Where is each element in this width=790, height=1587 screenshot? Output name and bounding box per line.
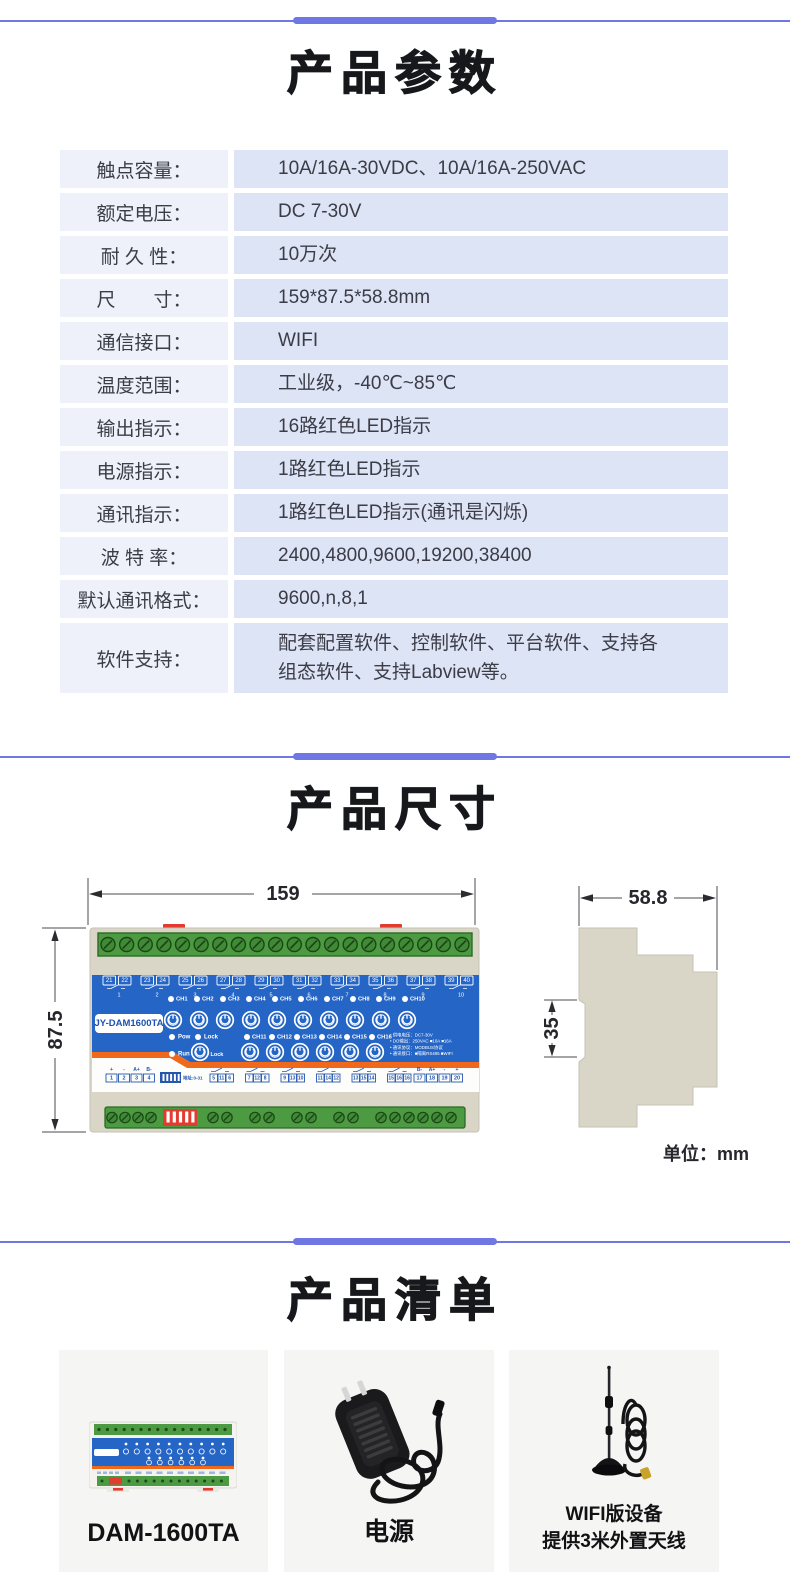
screw — [107, 1112, 117, 1122]
dip-switch — [173, 1112, 176, 1123]
terminal-block-top — [98, 933, 472, 956]
io-terminal-number: 11 — [318, 1075, 324, 1081]
terminal-number: 23 — [144, 978, 151, 984]
screw — [269, 938, 283, 952]
screw — [287, 938, 301, 952]
screw — [404, 1112, 414, 1122]
terminal-number: 29 — [258, 978, 265, 984]
spec-value: WIFI — [234, 322, 728, 360]
module-photo — [89, 1414, 237, 1496]
section-divider — [0, 753, 790, 760]
spec-label: 尺 寸： — [60, 279, 228, 317]
screw — [157, 938, 171, 952]
wifi-antenna-photo — [539, 1364, 689, 1506]
io-terminal-number: 9 — [283, 1075, 286, 1081]
dip-switch — [167, 1112, 170, 1123]
screw — [325, 938, 339, 952]
io-terminal-number: 20 — [454, 1075, 460, 1081]
dip-switch — [179, 1112, 182, 1123]
screw — [250, 1112, 260, 1122]
spec-value: DC 7-30V — [234, 193, 728, 231]
lock-button-label: Lock — [211, 1052, 225, 1058]
ch-label: CH11 — [252, 1035, 267, 1041]
io-terminal-number: 15 — [388, 1075, 394, 1081]
section-title-checklist: 产品清单 — [0, 1277, 790, 1323]
spec-value: 9600,n,8,1 — [234, 580, 728, 618]
screw — [418, 938, 432, 952]
ch-label: CH14 — [327, 1035, 343, 1041]
ch-led — [350, 996, 356, 1002]
ch-label: CH5 — [280, 997, 292, 1003]
terminal-number: 36 — [387, 978, 394, 984]
dip-switch — [191, 1112, 194, 1123]
ch-label: CH8 — [358, 997, 370, 1003]
io-terminal-number: 3 — [135, 1075, 138, 1081]
screw — [348, 1112, 358, 1122]
product-label: DAM-1600TA — [59, 1519, 268, 1548]
ch-label: CH12 — [277, 1035, 292, 1041]
spec-value: 10A/16A-30VDC、10A/16A-250VAC — [234, 150, 728, 188]
screw — [455, 938, 469, 952]
section-divider — [0, 1238, 790, 1245]
io-terminal-number: 11 — [219, 1075, 225, 1081]
spec-value: 16路红色LED指示 — [234, 408, 728, 446]
ch-led — [272, 996, 278, 1002]
io-terminal-number: 14 — [325, 1075, 331, 1081]
panel-info-line: • 通讯协议：MODBUS协议 — [390, 1044, 443, 1051]
screw — [399, 938, 413, 952]
spec-label: 通讯指示： — [60, 494, 228, 532]
terminal-number: 32 — [311, 978, 318, 984]
ch-led — [246, 996, 252, 1002]
spec-label: 输出指示： — [60, 408, 228, 446]
ch-label: CH1 — [176, 997, 188, 1003]
io-terminal-number: 19 — [441, 1075, 447, 1081]
screw — [120, 938, 134, 952]
dim-width-label: 159 — [266, 883, 299, 905]
io-label: + — [110, 1067, 113, 1073]
screw — [306, 1112, 316, 1122]
io-terminal-number: 10 — [298, 1075, 304, 1081]
ch-led — [244, 1034, 250, 1040]
spec-label: 电源指示： — [60, 451, 228, 489]
relay-group-number: 5 — [269, 993, 272, 999]
screw — [138, 938, 152, 952]
ch-led — [319, 1034, 325, 1040]
section-divider — [0, 17, 790, 24]
product-label: WIFI版设备 提供3米外置天线 — [509, 1501, 719, 1556]
spec-value: 1路红色LED指示(通讯是闪烁) — [234, 494, 728, 532]
dim-rail-label: 35 — [541, 1017, 563, 1039]
panel-info-line: • 供电电压：DC7-30V — [390, 1032, 433, 1039]
io-terminal-number: 14 — [369, 1075, 375, 1081]
terminal-number: 40 — [463, 978, 470, 984]
terminal-number: 27 — [220, 978, 227, 984]
spec-label: 耐 久 性： — [60, 236, 228, 274]
screw — [380, 938, 394, 952]
screw — [208, 1112, 218, 1122]
ch-led — [324, 996, 330, 1002]
screw — [194, 938, 208, 952]
ch-led — [294, 1034, 300, 1040]
spec-value: 配套配置软件、控制软件、平台软件、支持各 组态软件、支持Labview等。 — [234, 623, 728, 693]
screw — [146, 1112, 156, 1122]
screw — [250, 938, 264, 952]
ch-led — [220, 996, 226, 1002]
spec-value: 10万次 — [234, 236, 728, 274]
relay-group-number: 7 — [345, 993, 348, 999]
lock-led — [195, 1034, 201, 1040]
screw — [213, 938, 227, 952]
dip-switch — [185, 1112, 188, 1123]
divider-accent-bar — [293, 1238, 497, 1245]
spec-label: 软件支持： — [60, 623, 228, 693]
ch-led — [369, 1034, 375, 1040]
screw — [101, 938, 115, 952]
terminal-number: 35 — [372, 978, 379, 984]
terminal-number: 26 — [197, 978, 204, 984]
spec-label: 额定电压： — [60, 193, 228, 231]
spec-value: 2400,4800,9600,19200,38400 — [234, 537, 728, 575]
relay-group-number: 1 — [117, 993, 120, 999]
unit-note: 单位：mm — [663, 1143, 749, 1164]
dim-height-label: 87.5 — [45, 1011, 67, 1050]
screw — [376, 1112, 386, 1122]
side-view-drawing: 58.8 35 — [541, 886, 717, 1127]
terminal-number: 33 — [334, 978, 341, 984]
ch-led — [402, 996, 408, 1002]
screw — [334, 1112, 344, 1122]
screw — [432, 1112, 442, 1122]
screw — [343, 938, 357, 952]
screw — [306, 938, 320, 952]
io-terminal-number: 16 — [404, 1075, 410, 1081]
dim-depth-label: 58.8 — [629, 887, 668, 909]
screw — [446, 1112, 456, 1122]
io-terminal-number: 12 — [254, 1075, 260, 1081]
section-title-params: 产品参数 — [0, 50, 790, 96]
io-label: A+ — [133, 1067, 140, 1073]
divider-accent-bar — [293, 17, 497, 24]
pow-led — [169, 1034, 175, 1040]
ch-label: CH9 — [384, 997, 396, 1003]
model-badge-label: JY-DAM1600TA — [95, 1018, 164, 1029]
io-terminal-number: 13 — [353, 1075, 359, 1081]
ch-led — [298, 996, 304, 1002]
spec-table: 触点容量：10A/16A-30VDC、10A/16A-250VAC额定电压：DC… — [60, 150, 728, 693]
terminal-number: 21 — [106, 978, 113, 984]
io-terminal-number: 2 — [122, 1075, 125, 1081]
terminal-number: 31 — [296, 978, 303, 984]
lock-label: Lock — [204, 1035, 219, 1041]
screw — [222, 1112, 232, 1122]
screw — [292, 1112, 302, 1122]
terminal-number: 39 — [448, 978, 455, 984]
screw — [436, 938, 450, 952]
dip-address-label: 地址:0-31 — [183, 1075, 203, 1082]
front-view-drawing: 159 87.5 2122232425262728293031323334353… — [42, 878, 479, 1132]
io-label: B- — [146, 1067, 152, 1073]
screw — [231, 938, 245, 952]
io-label: + — [456, 1067, 459, 1073]
spec-value: 工业级，-40℃~85℃ — [234, 365, 728, 403]
power-adapter-photo — [320, 1378, 458, 1510]
relay-group-number: 2 — [155, 993, 158, 999]
terminal-number: 25 — [182, 978, 189, 984]
pow-label: Pow — [178, 1035, 191, 1041]
terminal-number: 22 — [121, 978, 128, 984]
ch-label: CH4 — [254, 997, 266, 1003]
ch-label: CH3 — [228, 997, 240, 1003]
ch-label: CH15 — [352, 1035, 368, 1041]
section-title-dimensions: 产品尺寸 — [0, 786, 790, 832]
spec-label: 默认通讯格式： — [60, 580, 228, 618]
spec-label: 触点容量： — [60, 150, 228, 188]
io-terminal-number: 1 — [110, 1075, 113, 1081]
run-label: Run — [178, 1052, 190, 1058]
ch-led — [269, 1034, 275, 1040]
run-led — [169, 1051, 175, 1057]
terminal-number: 30 — [273, 978, 280, 984]
io-terminal-number: 7 — [248, 1075, 251, 1081]
page-root: 产品参数 触点容量：10A/16A-30VDC、10A/16A-250VAC额定… — [0, 0, 790, 1587]
terminal-number: 24 — [159, 978, 166, 984]
io-terminal-number: 15 — [361, 1075, 367, 1081]
ch-label: CH7 — [332, 997, 344, 1003]
ch-label: CH13 — [302, 1035, 318, 1041]
ch-label: CH2 — [202, 997, 214, 1003]
terminal-number: 38 — [425, 978, 432, 984]
product-card-module: DAM-1600TA — [59, 1350, 268, 1572]
io-label: A+ — [429, 1067, 436, 1073]
io-terminal-number: 8 — [264, 1075, 267, 1081]
divider-accent-bar — [293, 753, 497, 760]
screw — [264, 1112, 274, 1122]
panel-info-line: • 通讯接口：■隔离RS485 ■WIFI — [390, 1050, 453, 1057]
io-terminal-number: 13 — [290, 1075, 296, 1081]
screw — [176, 938, 190, 952]
product-card-power: 电源 — [284, 1350, 494, 1572]
ch-led — [344, 1034, 350, 1040]
screw — [133, 1112, 143, 1122]
ch-label: CH10 — [410, 997, 425, 1003]
terminal-number: 37 — [410, 978, 417, 984]
product-label: 电源 — [284, 1512, 494, 1548]
io-label: B- — [417, 1067, 423, 1073]
screw — [120, 1112, 130, 1122]
io-terminal-number: 6 — [228, 1075, 231, 1081]
io-terminal-number: 12 — [333, 1075, 339, 1081]
ch-label: CH6 — [306, 997, 318, 1003]
io-terminal-number: 16 — [396, 1075, 402, 1081]
ch-led — [376, 996, 382, 1002]
side-profile — [579, 928, 717, 1127]
spec-value: 1路红色LED指示 — [234, 451, 728, 489]
screw — [418, 1112, 428, 1122]
spec-label: 波 特 率： — [60, 537, 228, 575]
screw — [362, 938, 376, 952]
terminal-number: 34 — [349, 978, 356, 984]
dimensions-drawing: 159 87.5 2122232425262728293031323334353… — [0, 860, 790, 1180]
relay-group-number: 10 — [458, 993, 464, 999]
io-terminal-number: 18 — [429, 1075, 435, 1081]
screw — [390, 1112, 400, 1122]
io-terminal-number: 17 — [416, 1075, 422, 1081]
spec-label: 温度范围： — [60, 365, 228, 403]
io-terminal-number: 5 — [212, 1075, 215, 1081]
spec-label: 通信接口： — [60, 322, 228, 360]
ch-led — [168, 996, 174, 1002]
terminal-number: 28 — [235, 978, 242, 984]
ch-led — [194, 996, 200, 1002]
panel-info-line: • DO输出：250VAC ■10A ■16A — [390, 1038, 452, 1045]
spec-value: 159*87.5*58.8mm — [234, 279, 728, 317]
product-card-antenna: WIFI版设备 提供3米外置天线 — [509, 1350, 719, 1572]
